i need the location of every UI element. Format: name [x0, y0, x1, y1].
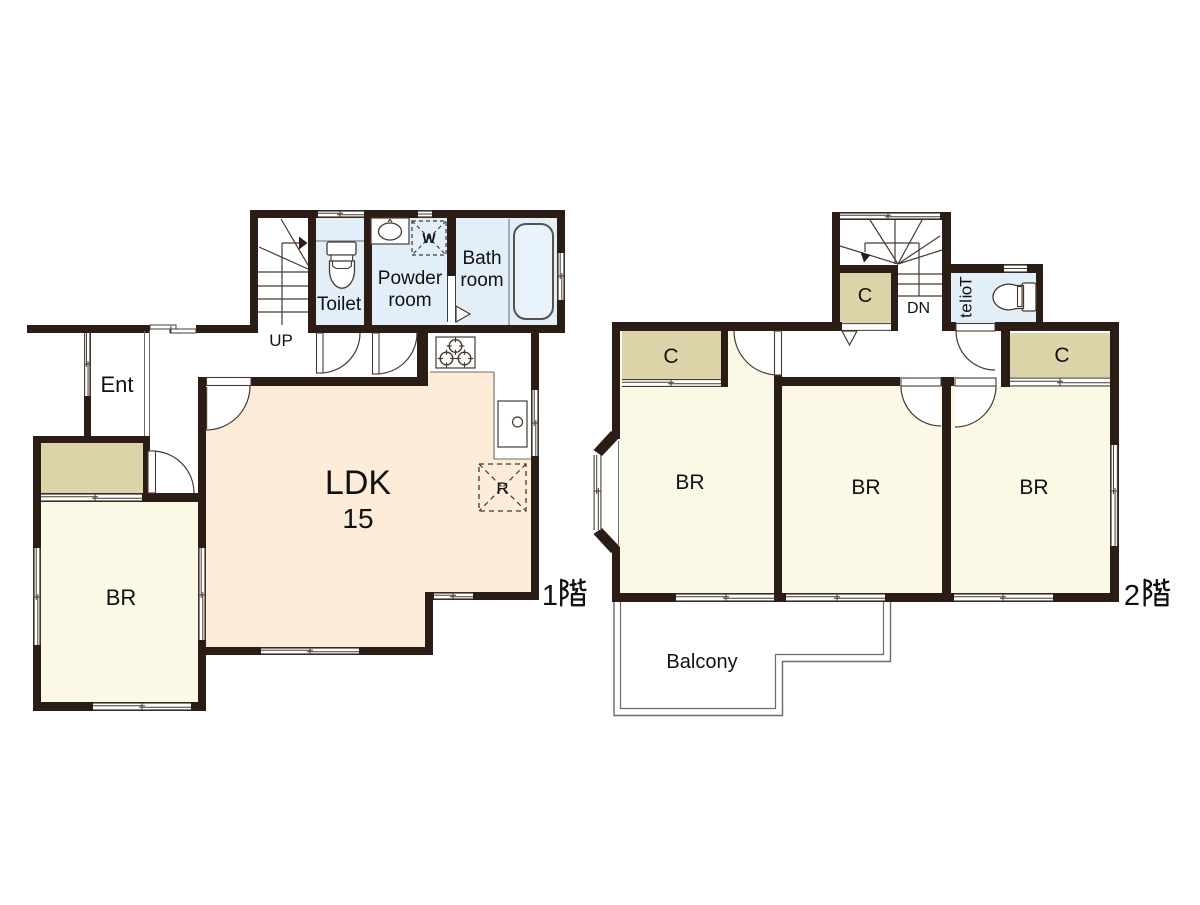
svg-text:1: 1 [542, 580, 558, 612]
svg-text:R: R [496, 479, 508, 498]
svg-text:C: C [663, 345, 678, 368]
svg-text:i: i [956, 295, 975, 299]
svg-text:BR: BR [675, 471, 704, 494]
svg-text:BR: BR [851, 476, 880, 499]
svg-text:UP: UP [269, 331, 293, 350]
svg-text:room: room [460, 270, 503, 291]
svg-text:t: t [956, 313, 975, 318]
svg-text:l: l [956, 299, 975, 303]
svg-text:C: C [1054, 344, 1069, 367]
svg-text:Balcony: Balcony [666, 651, 737, 673]
svg-text:15: 15 [342, 503, 373, 534]
svg-text:BR: BR [1019, 476, 1048, 499]
svg-text:W: W [422, 230, 436, 246]
svg-text:e: e [956, 303, 975, 312]
svg-text:BR: BR [106, 585, 137, 610]
svg-text:Toilet: Toilet [317, 294, 362, 315]
svg-text:o: o [956, 286, 975, 295]
svg-text:Bath: Bath [462, 248, 501, 269]
svg-text:C: C [858, 285, 872, 307]
svg-text:Ent: Ent [100, 372, 133, 397]
svg-text:LDK: LDK [325, 464, 391, 502]
svg-text:room: room [388, 290, 431, 311]
svg-text:Powder: Powder [378, 268, 443, 289]
svg-text:T: T [956, 276, 975, 286]
svg-text:2: 2 [1124, 580, 1140, 612]
svg-text:DN: DN [907, 300, 930, 317]
